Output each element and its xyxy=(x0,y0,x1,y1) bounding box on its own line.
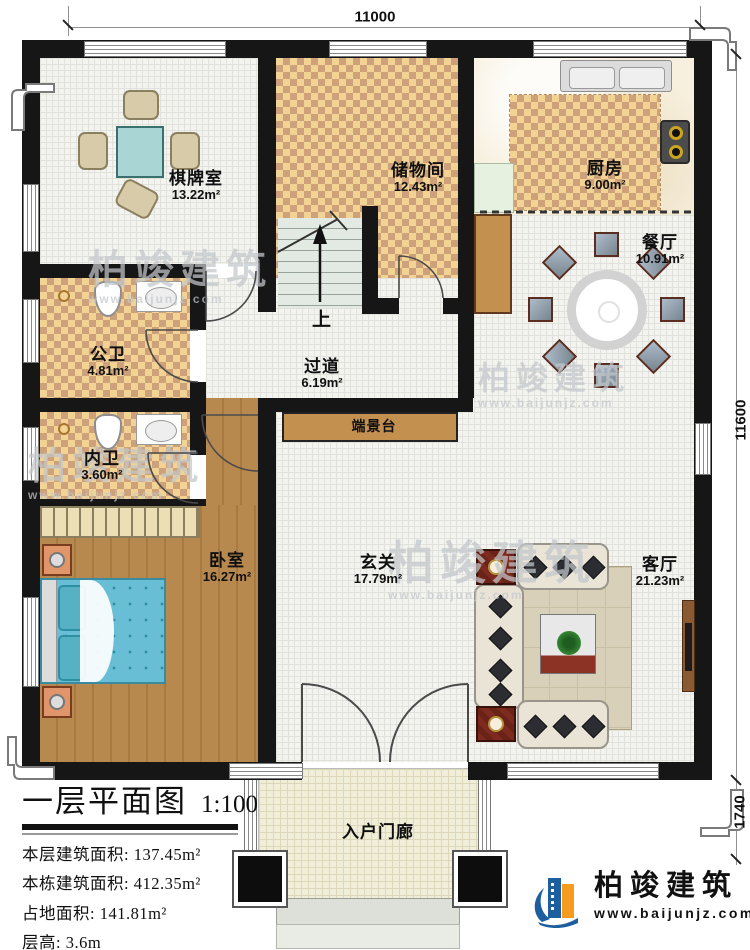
cushion xyxy=(488,626,512,650)
stat-building-area: 本栋建筑面积: 412.35m² xyxy=(22,870,258,894)
cushion xyxy=(488,594,512,618)
dimension-right-label: 11600 xyxy=(733,400,750,441)
logo-building-blue xyxy=(548,878,561,918)
dim-ext-top-left xyxy=(68,6,69,36)
wall xyxy=(190,278,206,330)
floor-plan-canvas: 11000 11600 1740 xyxy=(0,0,750,950)
window xyxy=(24,300,38,362)
window xyxy=(330,42,426,56)
room-label-bedroom: 卧室16.27m² xyxy=(203,551,251,585)
blanket-fold xyxy=(80,580,114,682)
window xyxy=(24,185,38,251)
tall-cabinet xyxy=(474,214,512,314)
dining-chair xyxy=(594,232,619,257)
stat-floor-area: 本层建筑面积: 137.45m² xyxy=(22,841,258,865)
stat-storey-height: 层高: 3.6m xyxy=(22,929,258,950)
game-table xyxy=(116,126,164,178)
wall xyxy=(190,412,206,455)
brand-logo-icon xyxy=(528,872,586,928)
dining-chair xyxy=(660,297,685,322)
cushion xyxy=(488,658,512,682)
wall xyxy=(22,499,206,506)
sofa xyxy=(517,700,609,749)
chair xyxy=(78,132,108,170)
floor-drain xyxy=(58,290,70,302)
tv-cabinet xyxy=(682,600,695,692)
nightstand xyxy=(42,686,72,718)
cushion xyxy=(552,714,576,738)
room-label-corridor: 过道6.19m² xyxy=(301,357,342,391)
brand-name: 柏竣建筑 xyxy=(594,872,750,901)
stove xyxy=(660,120,690,164)
sofa xyxy=(517,543,609,590)
lamp xyxy=(49,694,65,710)
lamp xyxy=(49,552,65,568)
stair-up-label: 上 xyxy=(312,309,332,330)
room-label-living-room: 客厅21.23m² xyxy=(636,555,684,589)
wall xyxy=(258,40,276,312)
sink-basin xyxy=(619,67,665,89)
room-label-public-bath: 公卫4.81m² xyxy=(87,345,128,379)
coffee-table xyxy=(540,614,596,674)
wall xyxy=(443,298,458,314)
side-table xyxy=(476,549,516,585)
decor-icon xyxy=(488,716,504,732)
title-underline-thin xyxy=(22,833,238,835)
window xyxy=(85,42,225,56)
porch-step xyxy=(276,898,460,925)
chair xyxy=(123,90,159,120)
wall xyxy=(362,206,378,312)
wall xyxy=(22,264,206,278)
wall xyxy=(362,298,399,314)
window xyxy=(696,424,710,474)
logo-building-orange xyxy=(562,884,574,918)
staircase xyxy=(278,218,362,308)
dim-line-top xyxy=(68,27,700,28)
title-underline xyxy=(22,824,238,830)
sink-basin xyxy=(569,67,615,89)
logo-swoosh xyxy=(535,888,550,922)
brand-logo: 柏竣建筑 www.baijunjz.com xyxy=(528,872,750,928)
tv xyxy=(685,623,692,671)
room-label-ensuite-bath: 内卫3.60m² xyxy=(81,449,122,483)
bathroom-sink xyxy=(136,414,182,445)
window xyxy=(508,764,658,778)
window xyxy=(534,42,686,56)
refrigerator xyxy=(474,163,514,213)
brand-website: www.baijunjz.com xyxy=(594,905,750,921)
kitchen-sink xyxy=(560,60,672,92)
cushion xyxy=(552,555,576,579)
wall xyxy=(258,398,276,762)
bathroom-sink xyxy=(136,281,182,312)
chair xyxy=(170,132,200,170)
bed xyxy=(40,578,166,684)
nightstand xyxy=(42,544,72,576)
sink-bowl xyxy=(145,287,177,309)
cushion xyxy=(523,555,547,579)
plan-title: 一层平面图 xyxy=(22,776,187,821)
table-center xyxy=(598,301,620,323)
corner-bracket-icon xyxy=(8,82,58,132)
dimension-top-label: 11000 xyxy=(355,9,396,26)
window xyxy=(24,428,38,480)
sofa xyxy=(474,584,524,709)
room-label-storage-room: 储物间12.43m² xyxy=(391,161,445,195)
cushion xyxy=(523,714,547,738)
room-label-kitchen: 厨房9.00m² xyxy=(584,159,625,193)
wardrobe xyxy=(40,506,200,538)
burner xyxy=(669,126,683,140)
porch-step xyxy=(276,924,460,949)
dining-table xyxy=(567,270,647,350)
room-label-chess-room: 棋牌室13.22m² xyxy=(169,169,223,203)
wall xyxy=(694,40,712,780)
wall xyxy=(276,398,473,412)
wall xyxy=(22,398,206,412)
plan-info-block: 一层平面图 1:100 本层建筑面积: 137.45m² 本栋建筑面积: 412… xyxy=(22,776,258,950)
dining-chair xyxy=(528,297,553,322)
room-label-dining-room: 餐厅10.91m² xyxy=(636,233,684,267)
room-label-console: 端景台 xyxy=(352,419,397,435)
side-table xyxy=(476,706,516,742)
burner xyxy=(669,145,683,159)
cushion xyxy=(488,682,512,706)
dimension-porch-label: 1740 xyxy=(732,795,749,828)
room-label-entry-porch: 入户门廊 xyxy=(342,822,414,841)
plant xyxy=(557,631,581,655)
cushion xyxy=(581,555,605,579)
floor-drain xyxy=(58,423,70,435)
decor-icon xyxy=(488,559,504,575)
room-label-foyer: 玄关17.79m² xyxy=(354,553,402,587)
cushion xyxy=(581,714,605,738)
headboard xyxy=(42,580,57,682)
window xyxy=(24,598,38,686)
sink-bowl xyxy=(145,420,177,442)
floor-bedroom-vestibule xyxy=(206,398,258,505)
dining-chair xyxy=(594,363,619,388)
stat-footprint-area: 占地面积: 141.81m² xyxy=(22,900,258,924)
porch-column xyxy=(454,852,506,906)
scale-label: 1:100 xyxy=(201,791,258,819)
wall xyxy=(458,40,474,398)
